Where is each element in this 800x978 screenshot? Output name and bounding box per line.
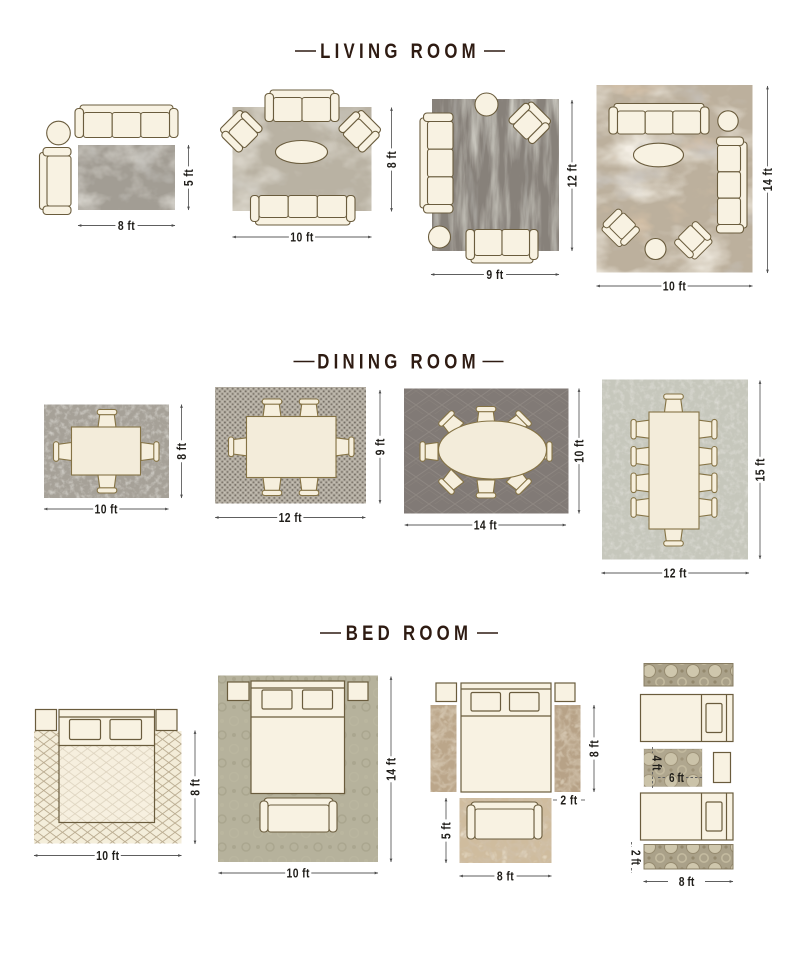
svg-text:10 ft: 10 ft — [96, 849, 119, 863]
svg-text:10 ft: 10 ft — [290, 230, 313, 244]
svg-text:8 ft: 8 ft — [679, 875, 695, 889]
svg-text:8 ft: 8 ft — [587, 740, 601, 757]
svg-text:10 ft: 10 ft — [287, 866, 310, 880]
svg-text:BED ROOM: BED ROOM — [346, 622, 472, 645]
svg-text:8 ft: 8 ft — [188, 779, 202, 796]
svg-text:10 ft: 10 ft — [663, 279, 686, 293]
svg-text:2 ft: 2 ft — [628, 850, 641, 865]
svg-text:8 ft: 8 ft — [385, 151, 399, 168]
svg-text:15 ft: 15 ft — [753, 458, 767, 481]
svg-text:5 ft: 5 ft — [182, 169, 196, 186]
svg-text:12 ft: 12 ft — [279, 511, 302, 525]
svg-text:6 ft: 6 ft — [669, 772, 684, 785]
svg-text:9 ft: 9 ft — [373, 438, 387, 455]
svg-text:10 ft: 10 ft — [95, 502, 118, 516]
svg-text:14 ft: 14 ft — [474, 518, 497, 532]
svg-text:8 ft: 8 ft — [497, 869, 514, 883]
svg-text:14 ft: 14 ft — [384, 758, 398, 781]
svg-text:12 ft: 12 ft — [565, 164, 579, 187]
svg-text:8 ft: 8 ft — [175, 443, 189, 460]
svg-text:5 ft: 5 ft — [439, 822, 453, 839]
svg-text:14 ft: 14 ft — [761, 168, 775, 191]
svg-text:4 ft: 4 ft — [649, 756, 662, 771]
svg-text:8 ft: 8 ft — [118, 219, 135, 233]
svg-text:12 ft: 12 ft — [664, 566, 687, 580]
svg-text:10 ft: 10 ft — [572, 439, 586, 462]
svg-text:2 ft: 2 ft — [560, 793, 577, 807]
svg-text:LIVING ROOM: LIVING ROOM — [320, 40, 480, 63]
svg-text:DINING ROOM: DINING ROOM — [317, 351, 480, 374]
svg-text:9 ft: 9 ft — [486, 268, 503, 282]
